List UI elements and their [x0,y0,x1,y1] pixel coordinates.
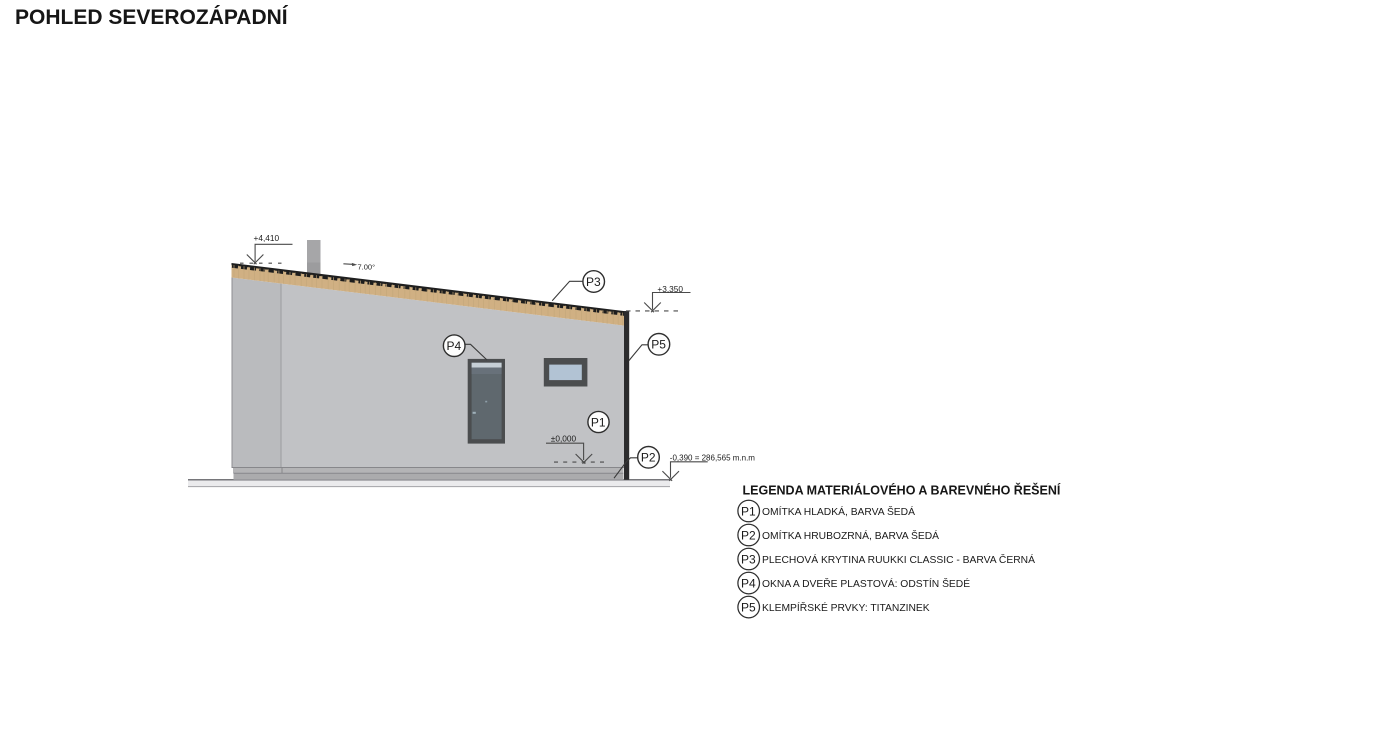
svg-text:P4: P4 [741,576,756,590]
svg-text:P4: P4 [447,339,462,353]
svg-text:+4,410: +4,410 [254,233,280,243]
svg-text:P3: P3 [586,275,601,289]
svg-text:P3: P3 [741,552,756,566]
svg-text:LEGENDA MATERIÁLOVÉHO A BAREVN: LEGENDA MATERIÁLOVÉHO A BAREVNÉHO ŘEŠENÍ [743,483,1061,498]
svg-text:P2: P2 [741,528,756,542]
svg-text:OKNA A DVEŘE PLASTOVÁ: ODSTÍN: OKNA A DVEŘE PLASTOVÁ: ODSTÍN ŠEDÉ [762,577,970,590]
svg-text:OMÍTKA HRUBOZRNÁ, BARVA ŠEDÁ: OMÍTKA HRUBOZRNÁ, BARVA ŠEDÁ [762,529,939,542]
svg-text:P2: P2 [641,451,656,465]
svg-text:P5: P5 [741,600,756,614]
svg-text:-0,390 = 286,565 m.n.m: -0,390 = 286,565 m.n.m [670,453,756,462]
svg-text:P1: P1 [741,504,756,518]
svg-text:POHLED SEVEROZÁPADNÍ: POHLED SEVEROZÁPADNÍ [15,6,289,29]
svg-text:OMÍTKA HLADKÁ, BARVA ŠEDÁ: OMÍTKA HLADKÁ, BARVA ŠEDÁ [762,505,915,518]
svg-text:+3,350: +3,350 [657,284,683,294]
svg-text:PLECHOVÁ KRYTINA RUUKKI CLASSI: PLECHOVÁ KRYTINA RUUKKI CLASSIC - BARVA … [762,553,1035,566]
svg-text:KLEMPÍŘSKÉ PRVKY: TITANZINEK: KLEMPÍŘSKÉ PRVKY: TITANZINEK [762,601,930,614]
svg-text:P5: P5 [651,338,666,352]
svg-text:7.00°: 7.00° [358,262,376,271]
svg-text:P1: P1 [591,415,606,429]
svg-text:±0,000: ±0,000 [551,433,577,443]
